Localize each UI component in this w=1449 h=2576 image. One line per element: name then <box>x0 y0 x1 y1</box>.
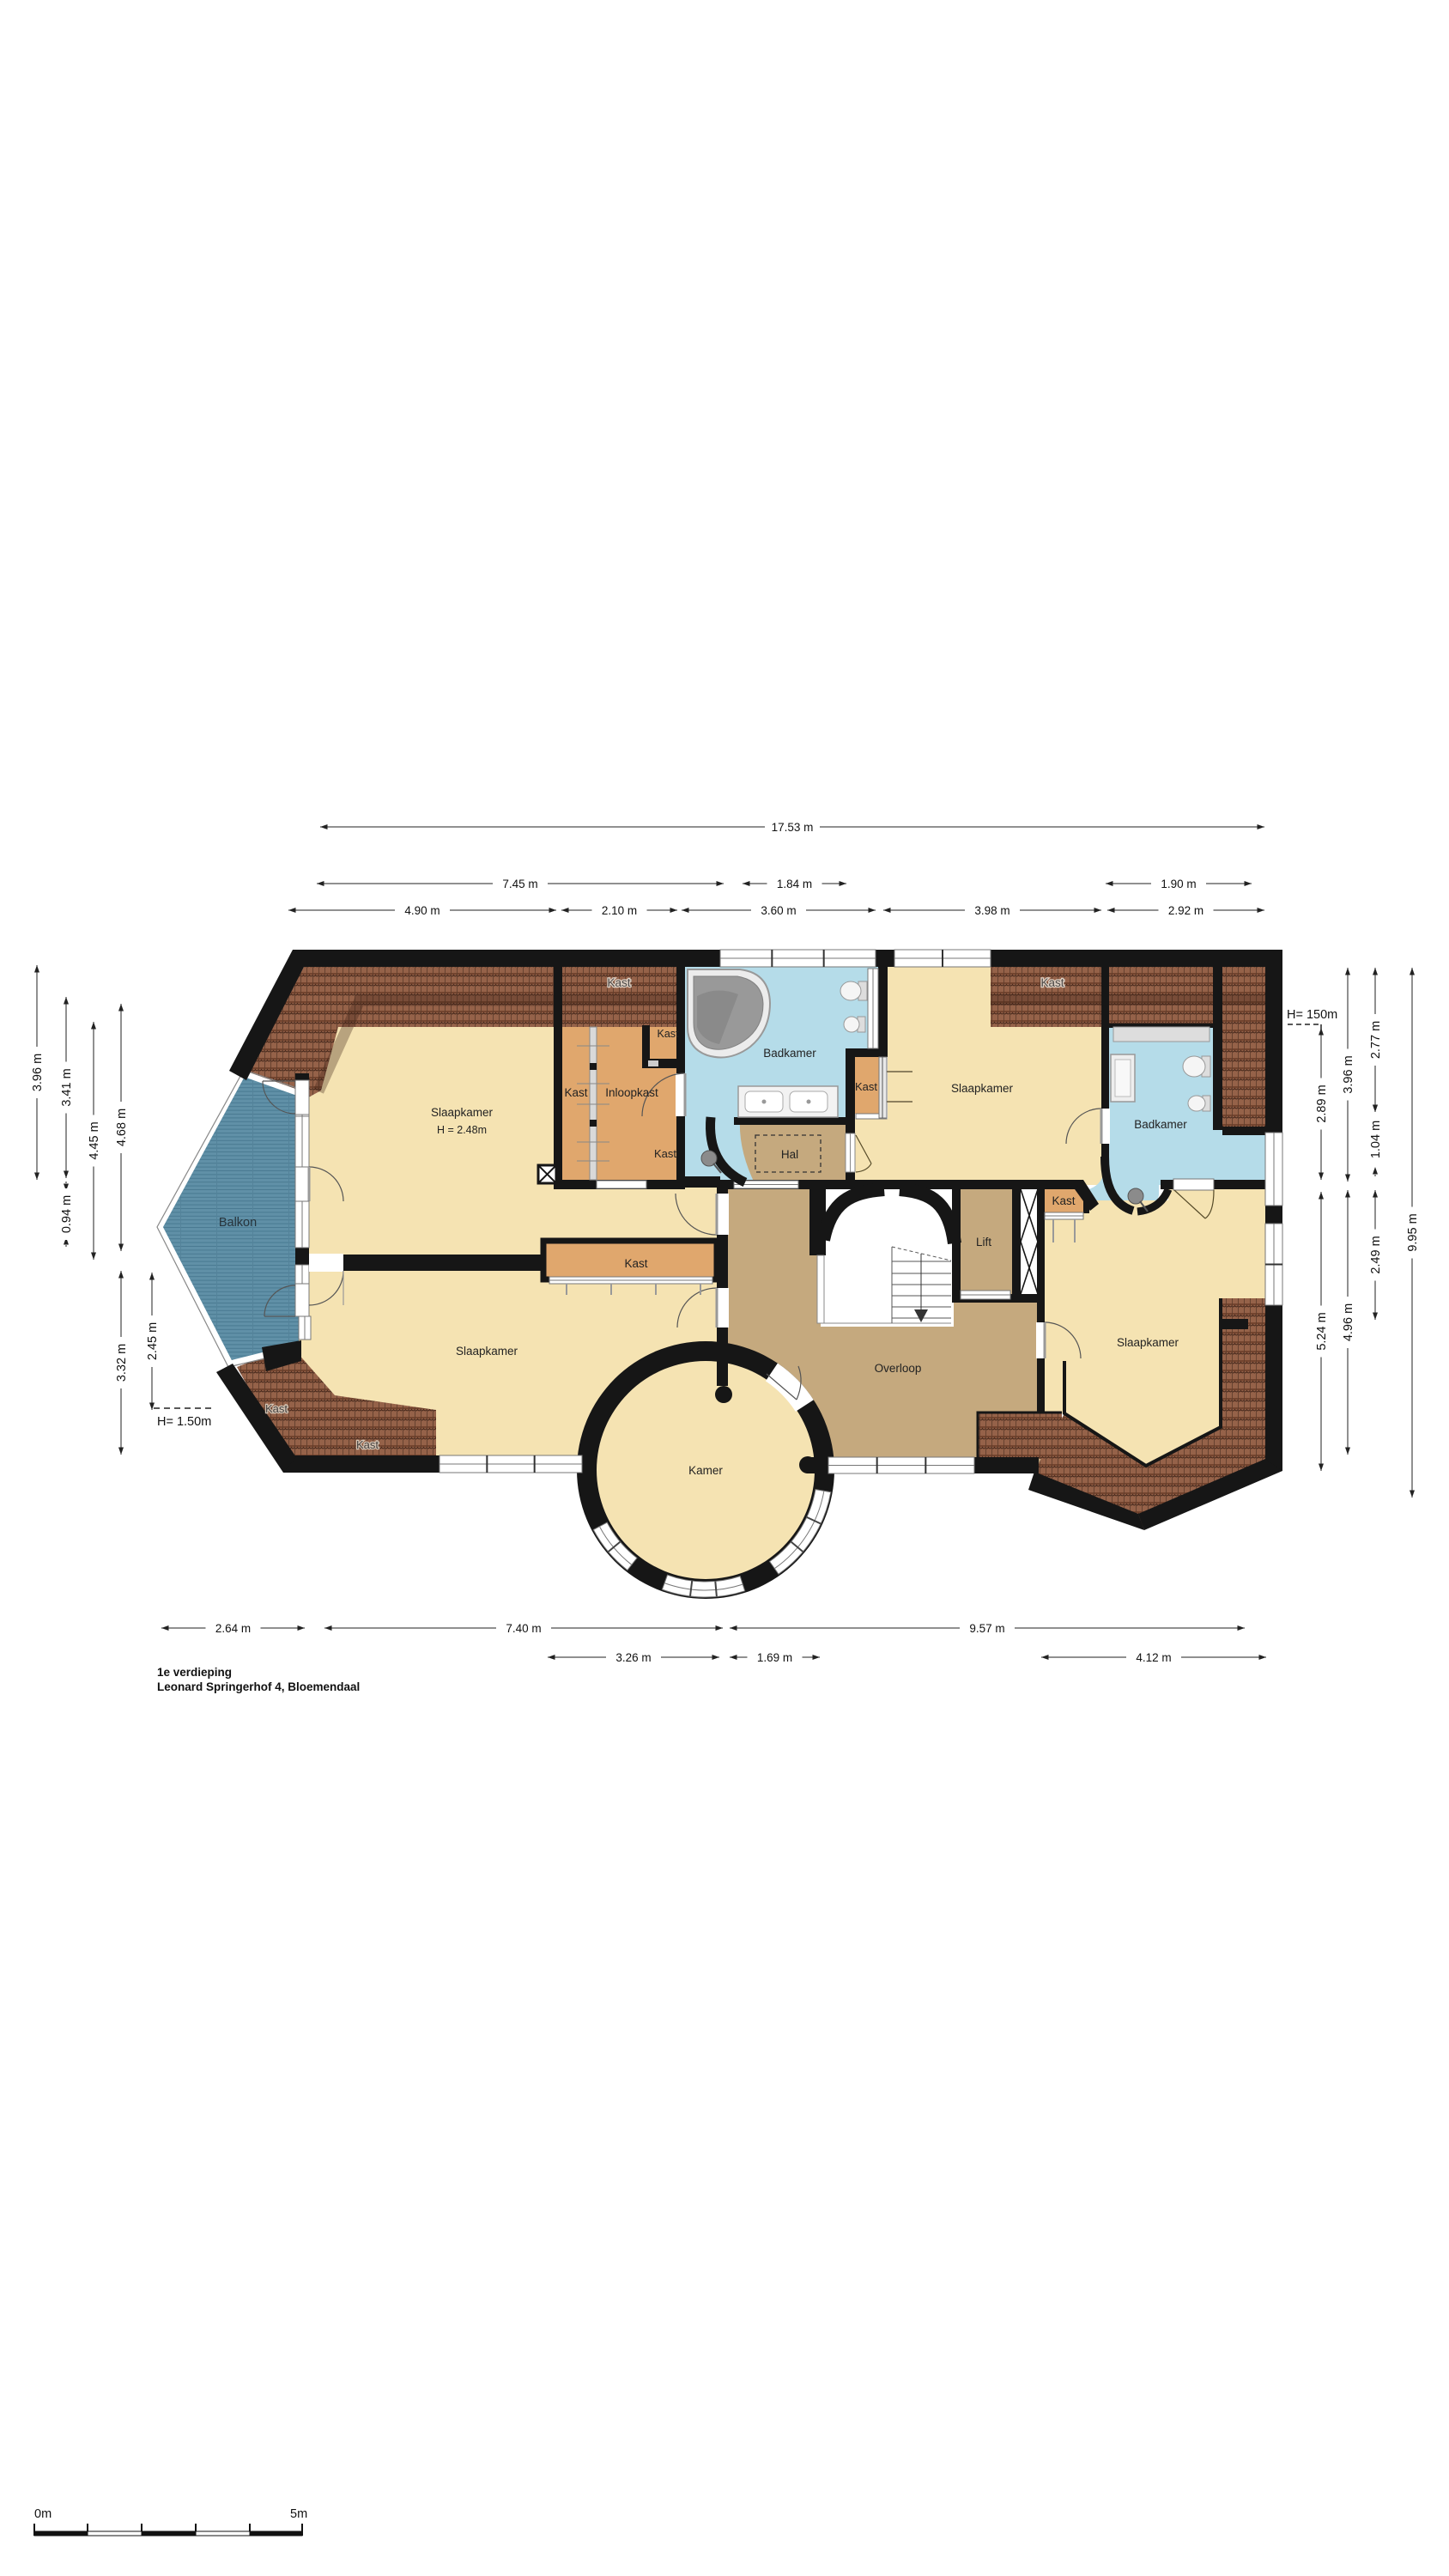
svg-text:3.96 m: 3.96 m <box>31 1054 45 1091</box>
svg-text:5.24 m: 5.24 m <box>1315 1312 1329 1350</box>
svg-text:3.96 m: 3.96 m <box>1342 1055 1355 1093</box>
svg-text:H= 150m: H= 150m <box>1287 1008 1337 1022</box>
svg-text:Kast: Kast <box>564 1086 587 1099</box>
svg-text:1.84 m: 1.84 m <box>777 878 812 890</box>
svg-text:4.68 m: 4.68 m <box>115 1109 129 1146</box>
svg-text:Kast: Kast <box>654 1147 676 1160</box>
svg-text:Slaapkamer: Slaapkamer <box>1117 1336 1179 1349</box>
svg-text:4.96 m: 4.96 m <box>1342 1303 1355 1341</box>
svg-text:Slaapkamer: Slaapkamer <box>951 1082 1014 1095</box>
svg-text:5m: 5m <box>290 2507 307 2521</box>
svg-text:H = 2.48m: H = 2.48m <box>437 1124 487 1136</box>
svg-text:7.45 m: 7.45 m <box>502 878 537 890</box>
svg-text:9.57 m: 9.57 m <box>969 1622 1004 1635</box>
svg-text:7.40 m: 7.40 m <box>506 1622 541 1635</box>
svg-text:4.90 m: 4.90 m <box>404 904 440 917</box>
svg-text:Slaapkamer: Slaapkamer <box>456 1345 518 1358</box>
svg-text:2.89 m: 2.89 m <box>1315 1084 1329 1122</box>
svg-text:3.98 m: 3.98 m <box>974 904 1009 917</box>
svg-text:2.49 m: 2.49 m <box>1369 1236 1383 1273</box>
svg-text:Balkon: Balkon <box>219 1216 257 1230</box>
svg-text:1.90 m: 1.90 m <box>1161 878 1196 890</box>
svg-text:Kast: Kast <box>265 1402 288 1415</box>
svg-text:3.41 m: 3.41 m <box>60 1068 74 1106</box>
svg-text:0.94 m: 0.94 m <box>60 1195 74 1233</box>
svg-text:Kast: Kast <box>356 1438 379 1451</box>
svg-text:2.64 m: 2.64 m <box>215 1622 251 1635</box>
svg-text:3.32 m: 3.32 m <box>115 1344 129 1382</box>
svg-text:H= 1.50m: H= 1.50m <box>157 1415 211 1429</box>
svg-text:Kast: Kast <box>657 1028 679 1040</box>
svg-text:2.77 m: 2.77 m <box>1369 1021 1383 1059</box>
svg-text:0m: 0m <box>34 2507 52 2521</box>
svg-text:3.60 m: 3.60 m <box>761 904 796 917</box>
svg-text:Kast: Kast <box>624 1257 647 1270</box>
svg-text:2.10 m: 2.10 m <box>602 904 637 917</box>
svg-text:4.12 m: 4.12 m <box>1136 1651 1171 1664</box>
svg-text:Kast: Kast <box>1052 1194 1075 1207</box>
svg-text:Kamer: Kamer <box>688 1464 723 1477</box>
svg-text:Hal: Hal <box>781 1148 798 1161</box>
svg-text:2.45 m: 2.45 m <box>146 1322 160 1360</box>
svg-text:Kast: Kast <box>855 1080 877 1093</box>
svg-text:Kast: Kast <box>1040 976 1064 989</box>
svg-text:Lift: Lift <box>976 1236 991 1249</box>
svg-text:17.53 m: 17.53 m <box>772 821 814 834</box>
svg-text:4.45 m: 4.45 m <box>88 1121 101 1159</box>
svg-text:Slaapkamer: Slaapkamer <box>431 1106 494 1119</box>
svg-text:3.26 m: 3.26 m <box>615 1651 651 1664</box>
svg-text:Badkamer: Badkamer <box>763 1047 816 1060</box>
svg-text:2.92 m: 2.92 m <box>1168 904 1203 917</box>
svg-text:1.69 m: 1.69 m <box>757 1651 792 1664</box>
svg-text:Overloop: Overloop <box>875 1362 922 1375</box>
svg-text:1e verdieping: 1e verdieping <box>157 1666 232 1679</box>
svg-text:Inloopkast: Inloopkast <box>605 1086 658 1099</box>
svg-text:9.95 m: 9.95 m <box>1406 1213 1420 1251</box>
svg-text:Kast: Kast <box>607 976 630 989</box>
svg-text:Badkamer: Badkamer <box>1134 1118 1187 1131</box>
svg-text:1.04 m: 1.04 m <box>1369 1121 1383 1158</box>
svg-text:Leonard Springerhof 4, Bloemen: Leonard Springerhof 4, Bloemendaal <box>157 1680 360 1693</box>
